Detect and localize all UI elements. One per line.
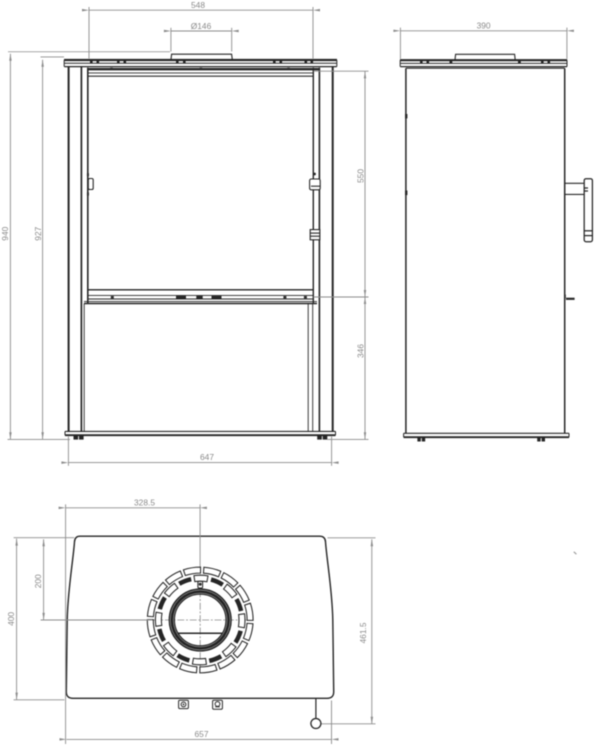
svg-text:927: 927 [33,226,43,240]
svg-text:647: 647 [200,452,214,462]
svg-text:328.5: 328.5 [134,498,155,508]
svg-text:657: 657 [195,729,209,739]
svg-text:400: 400 [6,612,16,626]
svg-text:Ø146: Ø146 [191,21,212,31]
svg-text:550: 550 [355,169,365,183]
svg-text:461.5: 461.5 [358,622,368,643]
svg-text:940: 940 [0,226,10,240]
svg-text:346: 346 [355,344,365,358]
svg-text:548: 548 [191,0,205,10]
svg-text:390: 390 [477,21,491,31]
svg-text:200: 200 [33,574,43,588]
